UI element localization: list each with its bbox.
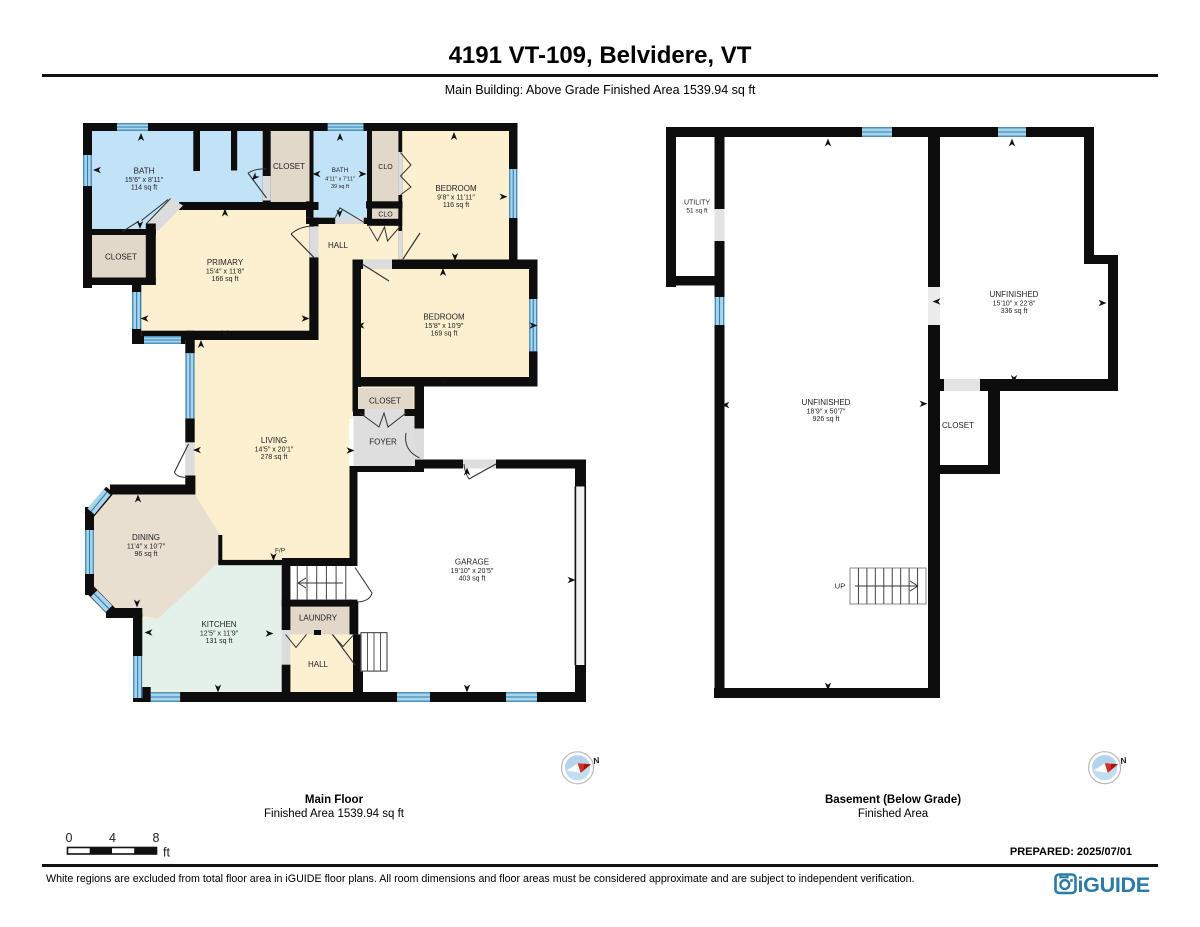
svg-text:403 sq ft: 403 sq ft <box>459 576 486 583</box>
svg-text:4’11″ x 7’11″: 4’11″ x 7’11″ <box>325 176 355 182</box>
svg-text:GARAGE: GARAGE <box>455 558 489 567</box>
svg-text:0: 0 <box>66 831 73 845</box>
svg-text:UTILITY: UTILITY <box>684 200 710 207</box>
svg-text:4: 4 <box>109 831 116 845</box>
svg-text:N: N <box>1119 755 1128 766</box>
svg-text:F/P: F/P <box>275 548 285 555</box>
svg-text:BEDROOM: BEDROOM <box>435 184 477 193</box>
svg-text:iGUIDE: iGUIDE <box>1078 873 1150 897</box>
svg-text:BATH: BATH <box>332 167 349 174</box>
svg-text:HALL: HALL <box>308 660 329 669</box>
svg-text:ft: ft <box>163 846 170 860</box>
svg-text:336 sq ft: 336 sq ft <box>1001 308 1028 315</box>
svg-text:51 sq ft: 51 sq ft <box>686 208 708 215</box>
svg-text:15’4″ x 11’8″: 15’4″ x 11’8″ <box>206 268 245 275</box>
svg-text:LAUNDRY: LAUNDRY <box>299 614 338 623</box>
svg-text:CLOSET: CLOSET <box>942 421 974 430</box>
svg-text:131 sq ft: 131 sq ft <box>206 638 233 645</box>
svg-text:15’8″ x 10’9″: 15’8″ x 10’9″ <box>425 323 464 330</box>
svg-text:8: 8 <box>153 831 160 845</box>
svg-text:15’6″ x 8’11″: 15’6″ x 8’11″ <box>125 177 164 184</box>
svg-text:KITCHEN: KITCHEN <box>201 620 236 629</box>
svg-text:N: N <box>592 755 601 766</box>
svg-text:UP: UP <box>835 582 845 591</box>
svg-text:166 sq ft: 166 sq ft <box>212 276 239 283</box>
svg-text:HALL: HALL <box>328 241 349 250</box>
svg-text:116 sq ft: 116 sq ft <box>443 202 469 209</box>
svg-text:12’5″ x 11’9″: 12’5″ x 11’9″ <box>200 630 239 637</box>
svg-text:15’10″ x 22’8″: 15’10″ x 22’8″ <box>993 300 1036 307</box>
svg-text:39 sq ft: 39 sq ft <box>331 184 350 190</box>
svg-text:DINING: DINING <box>132 533 160 542</box>
svg-text:UNFINISHED: UNFINISHED <box>990 290 1039 299</box>
svg-text:CLOSET: CLOSET <box>105 253 137 262</box>
svg-text:PRIMARY: PRIMARY <box>207 258 244 267</box>
svg-text:FOYER: FOYER <box>369 438 397 447</box>
svg-text:BEDROOM: BEDROOM <box>423 313 465 322</box>
svg-text:19’10″ x 20’5″: 19’10″ x 20’5″ <box>451 568 494 575</box>
svg-text:CLO: CLO <box>378 164 393 171</box>
svg-text:CLOSET: CLOSET <box>273 162 305 171</box>
svg-text:LIVING: LIVING <box>261 436 287 445</box>
svg-text:9’8″ x 11’11″: 9’8″ x 11’11″ <box>437 194 475 201</box>
svg-text:278 sq ft: 278 sq ft <box>261 454 288 461</box>
svg-text:CLO: CLO <box>378 212 393 219</box>
svg-text:11’4″ x 10’7″: 11’4″ x 10’7″ <box>127 543 166 550</box>
svg-text:14’5″ x 20’1″: 14’5″ x 20’1″ <box>255 446 294 453</box>
svg-text:18’9″ x 50’7″: 18’9″ x 50’7″ <box>807 408 846 415</box>
svg-text:BATH: BATH <box>134 167 155 176</box>
svg-text:UNFINISHED: UNFINISHED <box>802 398 851 407</box>
svg-text:169 sq ft: 169 sq ft <box>431 331 458 338</box>
svg-text:96 sq ft: 96 sq ft <box>135 551 158 558</box>
svg-text:926 sq ft: 926 sq ft <box>813 416 840 423</box>
svg-text:114 sq ft: 114 sq ft <box>131 185 157 192</box>
svg-text:CLOSET: CLOSET <box>369 397 401 406</box>
